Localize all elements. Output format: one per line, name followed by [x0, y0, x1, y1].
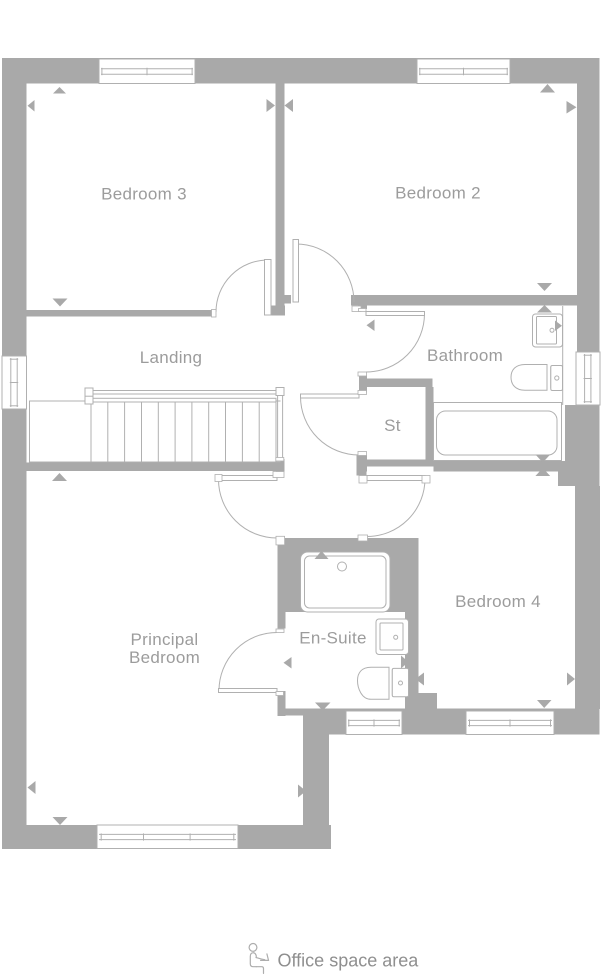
svg-text:En-Suite: En-Suite	[299, 629, 367, 648]
svg-text:Office space area: Office space area	[278, 951, 420, 971]
svg-text:Bedroom 3: Bedroom 3	[101, 185, 187, 204]
svg-text:Bedroom 2: Bedroom 2	[395, 184, 481, 203]
svg-text:Bedroom: Bedroom	[129, 648, 200, 667]
svg-text:Bedroom 4: Bedroom 4	[455, 592, 541, 611]
svg-text:Landing: Landing	[140, 348, 203, 367]
svg-text:Bathroom: Bathroom	[427, 346, 503, 365]
svg-text:St: St	[384, 416, 401, 435]
svg-text:Principal: Principal	[131, 630, 199, 649]
